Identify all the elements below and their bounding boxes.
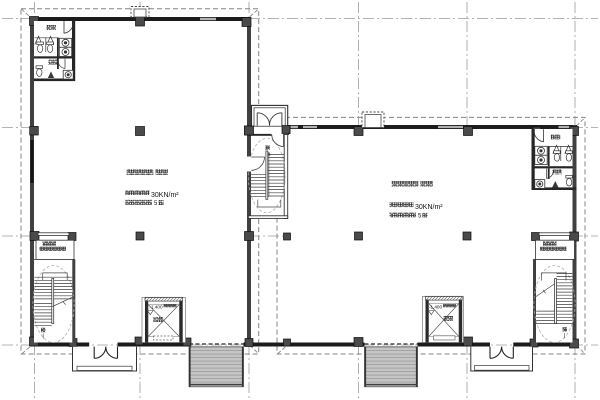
svg-text:30KN/m²: 30KN/m² xyxy=(415,204,443,211)
svg-text:-1.400: -1.400 xyxy=(429,304,442,309)
svg-text:30KN/m²: 30KN/m² xyxy=(151,192,179,199)
svg-text:-1.400: -1.400 xyxy=(150,304,163,309)
